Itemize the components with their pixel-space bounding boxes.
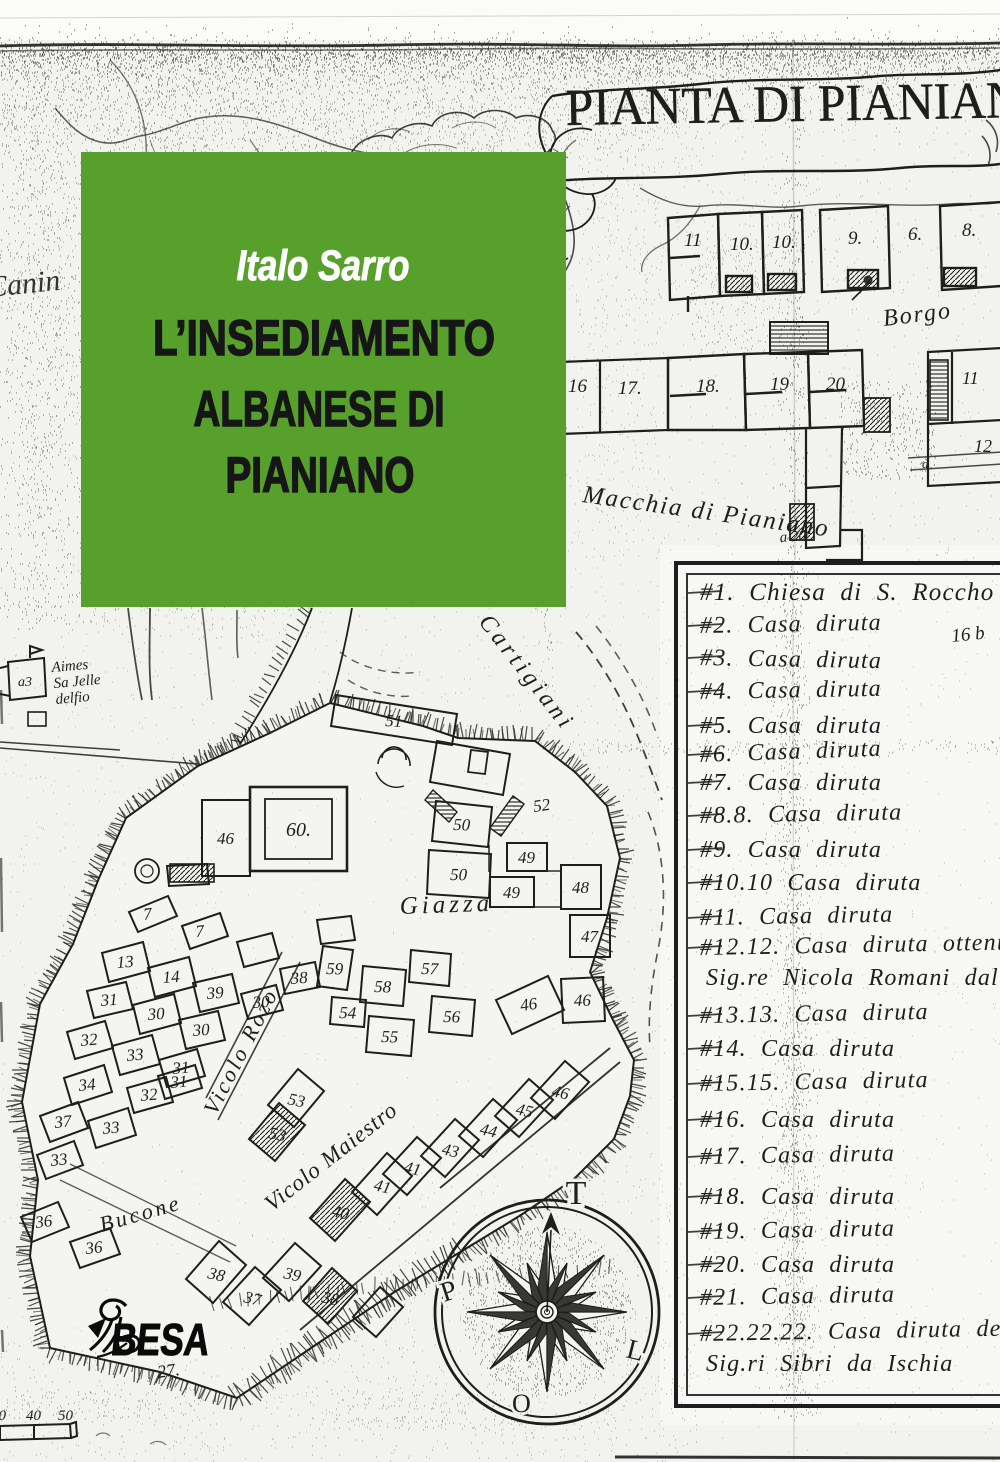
- svg-text:Sig.ri Sibri da Ischia: Sig.ri Sibri da Ischia: [706, 1351, 953, 1377]
- svg-text:#21. Casa diruta: #21. Casa diruta: [700, 1282, 896, 1311]
- svg-text:#7. Casa diruta: #7. Casa diruta: [700, 770, 882, 796]
- svg-text:delfio: delfio: [55, 689, 91, 708]
- svg-text:31: 31: [169, 1072, 189, 1092]
- svg-text:17.: 17.: [618, 378, 642, 399]
- svg-text:#4. Casa diruta: #4. Casa diruta: [700, 676, 882, 705]
- svg-text:10.: 10.: [772, 232, 796, 253]
- svg-text:50: 50: [453, 815, 471, 835]
- svg-text:#15.15. Casa diruta: #15.15. Casa diruta: [700, 1067, 929, 1097]
- svg-text:46: 46: [217, 829, 235, 848]
- svg-text:34: 34: [77, 1075, 97, 1096]
- svg-text:46: 46: [574, 991, 592, 1010]
- svg-text:30: 30: [0, 1408, 7, 1424]
- svg-text:11: 11: [962, 368, 979, 388]
- svg-text:#1. Chiesa di S. Roccho: #1. Chiesa di S. Roccho: [700, 579, 994, 606]
- svg-text:37: 37: [52, 1111, 73, 1132]
- svg-text:a3: a3: [18, 675, 32, 690]
- svg-text:10.: 10.: [730, 234, 754, 255]
- svg-text:#3. Casa diruta: #3. Casa diruta: [700, 645, 882, 674]
- svg-text:58: 58: [374, 977, 392, 997]
- svg-text:#16. Casa diruta: #16. Casa diruta: [700, 1107, 895, 1133]
- svg-text:13: 13: [116, 952, 134, 972]
- svg-text:#19. Casa diruta: #19. Casa diruta: [700, 1216, 896, 1245]
- svg-text:14: 14: [162, 967, 181, 987]
- svg-text:52: 52: [532, 795, 552, 816]
- svg-text:#11. Casa diruta: #11. Casa diruta: [700, 902, 894, 931]
- svg-text:PIANTA DI PIANIANO: PIANTA DI PIANIANO: [565, 71, 1000, 137]
- svg-text:#13.13. Casa diruta: #13.13. Casa diruta: [700, 999, 929, 1029]
- svg-text:59: 59: [326, 959, 344, 979]
- svg-text:36: 36: [83, 1237, 103, 1258]
- svg-text:60.: 60.: [286, 819, 311, 841]
- svg-text:BESA: BESA: [109, 1314, 212, 1365]
- svg-text:8.: 8.: [962, 220, 976, 241]
- svg-text:46: 46: [519, 994, 539, 1015]
- svg-text:O: O: [512, 1389, 531, 1418]
- svg-text:50: 50: [58, 1408, 74, 1424]
- svg-text:49: 49: [503, 883, 521, 902]
- svg-text:31: 31: [99, 990, 118, 1010]
- svg-text:55: 55: [381, 1027, 399, 1047]
- svg-text:33: 33: [101, 1118, 121, 1138]
- svg-text:57: 57: [421, 959, 440, 979]
- svg-text:50: 50: [450, 865, 468, 884]
- svg-text:PIANIANO: PIANIANO: [226, 447, 415, 503]
- svg-text:#20. Casa diruta: #20. Casa diruta: [700, 1252, 895, 1278]
- svg-text:30: 30: [191, 1020, 211, 1040]
- svg-text:49: 49: [518, 848, 536, 867]
- svg-text:36: 36: [33, 1211, 54, 1232]
- svg-text:L’INSEDIAMENTO: L’INSEDIAMENTO: [153, 310, 495, 366]
- svg-text:56: 56: [443, 1007, 461, 1027]
- svg-text:#9. Casa diruta: #9. Casa diruta: [700, 837, 882, 863]
- svg-text:Giazza: Giazza: [399, 890, 493, 920]
- svg-text:#22.22.22. Casa diruta dell: #22.22.22. Casa diruta dell: [700, 1315, 1000, 1347]
- svg-text:#18. Casa diruta: #18. Casa diruta: [700, 1184, 895, 1210]
- svg-text:18.: 18.: [696, 376, 720, 397]
- svg-text:16: 16: [568, 376, 588, 397]
- svg-text:30: 30: [146, 1004, 166, 1024]
- svg-text:ALBANESE DI: ALBANESE DI: [194, 381, 445, 437]
- svg-text:#12.12. Casa diruta ottenuta d: #12.12. Casa diruta ottenuta di: [700, 929, 1000, 961]
- svg-text:33: 33: [125, 1045, 145, 1065]
- svg-text:19: 19: [770, 374, 790, 395]
- svg-text:39: 39: [205, 983, 225, 1003]
- svg-text:#10.10 Casa diruta: #10.10 Casa diruta: [700, 870, 922, 896]
- svg-text:33: 33: [48, 1149, 68, 1170]
- svg-text:20: 20: [826, 374, 846, 395]
- svg-text:#14. Casa diruta: #14. Casa diruta: [700, 1036, 895, 1062]
- svg-text:Italo Sarro: Italo Sarro: [237, 242, 410, 290]
- svg-text:11: 11: [684, 230, 702, 251]
- svg-text:#2. Casa diruta: #2. Casa diruta: [700, 610, 882, 639]
- svg-text:9.: 9.: [848, 228, 862, 249]
- svg-text:16 b: 16 b: [950, 623, 985, 647]
- svg-text:32: 32: [139, 1085, 159, 1106]
- svg-text:54: 54: [339, 1003, 357, 1023]
- svg-text:47: 47: [581, 927, 600, 946]
- svg-text:T: T: [566, 1175, 587, 1212]
- svg-text:32: 32: [79, 1030, 99, 1051]
- svg-text:6.: 6.: [908, 224, 922, 245]
- svg-text:#17. Casa diruta: #17. Casa diruta: [700, 1141, 896, 1170]
- svg-text:51: 51: [385, 711, 403, 731]
- svg-text:48: 48: [572, 878, 590, 897]
- svg-text:#5. Casa diruta: #5. Casa diruta: [700, 713, 882, 739]
- svg-text:Sig.re Nicola Romani dalla R.C: Sig.re Nicola Romani dalla R.C.A: [706, 965, 1000, 991]
- svg-text:#8.8. Casa diruta: #8.8. Casa diruta: [700, 799, 903, 829]
